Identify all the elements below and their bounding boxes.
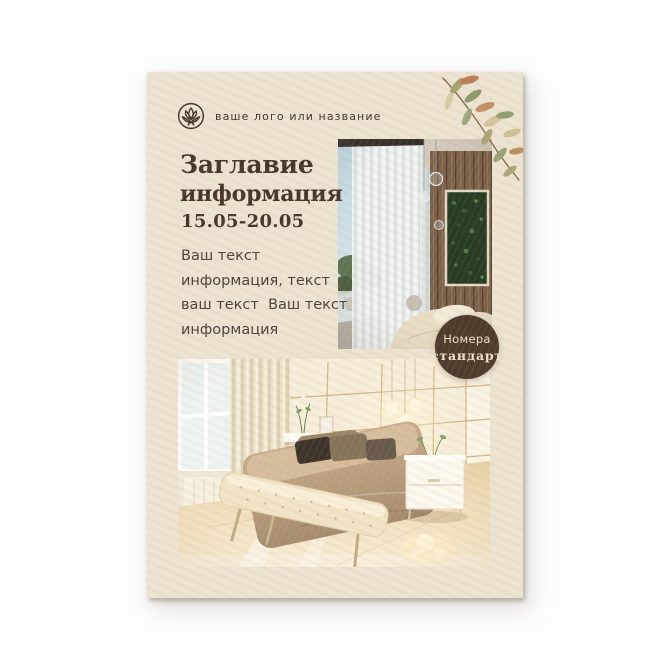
lotus-icon: [176, 101, 206, 131]
watercolor-leaf-branch-icon: [437, 74, 523, 188]
photo-vignette: [178, 359, 490, 567]
badge-line-2: стандарт: [431, 348, 503, 363]
bottom-photo-bedroom: [178, 359, 490, 567]
body-line: информация, текст: [181, 269, 347, 294]
badge-line-1: Номера: [443, 332, 491, 346]
body-line: информация: [181, 318, 347, 343]
body-line: Ваш текст: [181, 244, 347, 269]
brand-name-placeholder: ваше лого или название: [215, 110, 381, 123]
body-line: ваш текст Ваш текст: [181, 293, 347, 318]
title-line-1: Заглавие: [180, 150, 343, 180]
page-title: Заглавие информация: [180, 150, 343, 208]
body-text: Ваш текст информация, текст ваш текст Ва…: [181, 244, 347, 342]
flyer-poster: ваше лого или название Заглавие информац…: [147, 72, 523, 598]
date-range: 15.05-20.05: [181, 212, 305, 232]
room-category-badge: Номера стандарт: [435, 315, 499, 379]
brand-row: ваше лого или название: [176, 101, 381, 131]
title-line-2: информация: [180, 180, 343, 208]
